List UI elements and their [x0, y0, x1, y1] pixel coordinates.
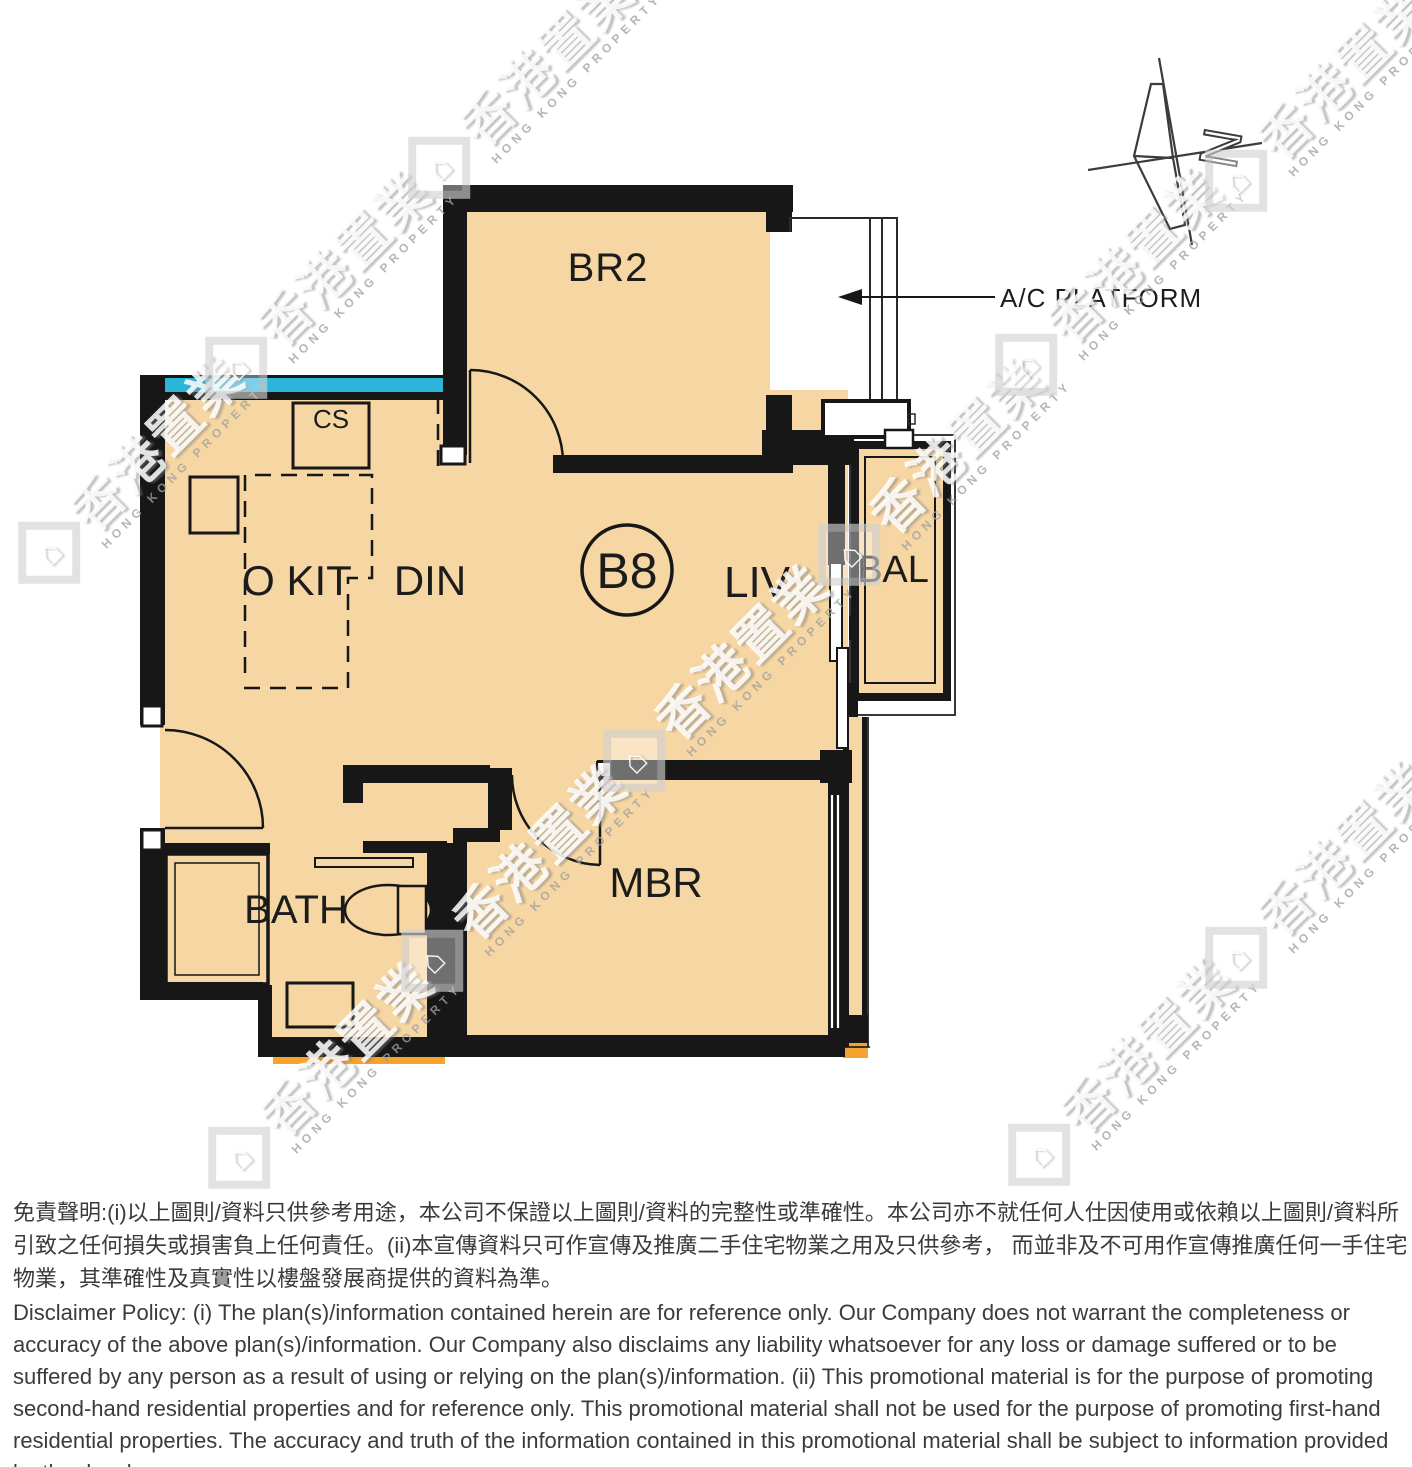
- bath-label: BATH: [244, 888, 348, 932]
- din-label: DIN: [394, 557, 466, 604]
- br2-label: BR2: [568, 246, 649, 290]
- floorplan-page: N BR2 CS O KIT DIN B8 LIV BAL MBR BATH A…: [0, 0, 1412, 1467]
- cs-label: CS: [313, 404, 349, 434]
- ac-platform-callout: [838, 289, 995, 305]
- room-mbr-lower: [258, 985, 848, 1040]
- disclaimer-block: 免責聲明:(i)以上圖則/資料只供參考用途，本公司不保證以上圖則/資料的完整性或…: [13, 1196, 1409, 1467]
- orange-sill-left: [273, 1057, 445, 1064]
- liv-label: LIV: [724, 558, 791, 607]
- window-band: [165, 378, 443, 392]
- toilet-cistern: [398, 886, 426, 934]
- bal-label: BAL: [857, 549, 929, 591]
- arrow-left-icon: [838, 289, 862, 305]
- room-fills: [160, 205, 868, 1064]
- unit-badge-label: B8: [596, 543, 657, 599]
- north-arrow-icon: N: [1088, 58, 1262, 245]
- disclaimer-chinese: 免責聲明:(i)以上圖則/資料只供參考用途，本公司不保證以上圖則/資料的完整性或…: [13, 1196, 1409, 1295]
- ac-platform-label: A/C PLATFORM: [1000, 283, 1202, 313]
- disclaimer-english: Disclaimer Policy: (i) The plan(s)/infor…: [13, 1297, 1409, 1467]
- compass-letter: N: [1187, 124, 1253, 173]
- okit-label: O KIT: [242, 557, 352, 604]
- mbr-label: MBR: [609, 859, 702, 906]
